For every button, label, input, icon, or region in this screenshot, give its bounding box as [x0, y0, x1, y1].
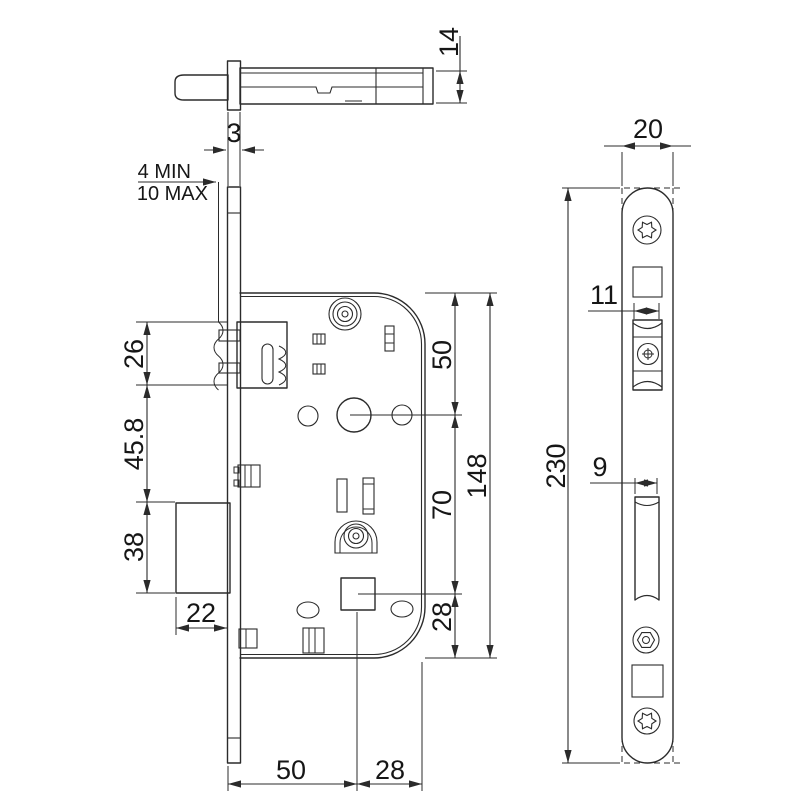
- lock-case-view: [176, 187, 425, 763]
- torx-recess-icon: [638, 222, 656, 238]
- dim-deadbolt-throw-label: 22: [186, 598, 216, 628]
- bottom-adjuster: [303, 628, 324, 653]
- dim-latch-width-label: 11: [590, 280, 618, 310]
- dim-backset-label: 50: [276, 755, 306, 785]
- latch-spring-capsule: [262, 344, 273, 384]
- middle-slots: [337, 478, 374, 514]
- dim-spindle-to-bottom-label: 28: [427, 602, 457, 632]
- hex-screw: [633, 627, 659, 653]
- lower-square-hole: [632, 665, 663, 697]
- dim-plate-length-label: 230: [541, 443, 571, 488]
- latch-spring: [279, 346, 286, 385]
- faceplate-outline: [622, 188, 673, 763]
- dim-bolt-height-label: 14: [434, 27, 464, 57]
- dim-case-rear-label: 28: [375, 755, 405, 785]
- technical-drawing-page: 14 3 4 MIN 10 MAX: [0, 0, 800, 800]
- upper-slots: [313, 326, 394, 374]
- auxiliary-plunger: [234, 465, 260, 487]
- latch-bolt-body-lines: [240, 68, 423, 104]
- left-dimensions: 26 45.8 38 22: [119, 322, 227, 635]
- faceplate-corner-dashes: [614, 188, 681, 763]
- mounting-screw-boss: [329, 298, 361, 330]
- case-outline-outer: [240, 293, 425, 658]
- dim-bolt-height: 14: [434, 27, 467, 103]
- dim-top-to-handle-label: 50: [427, 340, 457, 370]
- faceplate-thickness-dims: 3 4 MIN 10 MAX: [137, 112, 264, 390]
- dim-plate-width: 20: [604, 114, 691, 186]
- deadbolt-front: [635, 497, 659, 600]
- torx-screw-bottom: [634, 708, 660, 734]
- torx-screw-top: [633, 216, 661, 244]
- dim-case-height-label: 148: [462, 453, 492, 498]
- right-oval-hole: [391, 601, 413, 617]
- bottom-corner-part: [239, 629, 257, 648]
- upper-square-hole: [633, 267, 662, 297]
- dim-handle-to-spindle-label: 70: [427, 490, 457, 520]
- dim-deadbolt-width-label: 9: [592, 452, 607, 482]
- latch-bolt-tip: [175, 75, 228, 100]
- dim-faceplate-thickness-label: 3: [226, 118, 241, 148]
- left-oval-hole: [297, 602, 319, 618]
- faceplate-edge-strip: [228, 187, 241, 763]
- latch-bolt-front: [633, 320, 662, 390]
- dim-deadbolt-width: 9: [590, 452, 657, 494]
- latch-bolt-top-view: 14: [175, 27, 467, 110]
- latch-assembly: [219, 322, 287, 388]
- dim-deadbolt-zone-label: 38: [119, 532, 149, 562]
- dim-mid-zone-label: 45.8: [119, 418, 149, 471]
- dim-latch-zone-label: 26: [119, 339, 149, 369]
- dim-recess-min-label: 4 MIN: [138, 161, 191, 183]
- dim-latch-width: 11: [588, 280, 659, 319]
- mortise-lock-drawing: 14 3 4 MIN 10 MAX: [0, 0, 800, 800]
- spring-follower: [335, 521, 377, 553]
- left-fixing-hole: [298, 406, 318, 426]
- right-dimensions: 50 70 28 148: [350, 293, 497, 658]
- faceplate-flange-top-view: [228, 61, 241, 110]
- deadbolt-thrown: [176, 503, 230, 593]
- faceplate-view: 20 11: [541, 114, 691, 763]
- dim-plate-width-label: 20: [633, 114, 663, 144]
- dim-recess-max-label: 10 MAX: [137, 183, 208, 205]
